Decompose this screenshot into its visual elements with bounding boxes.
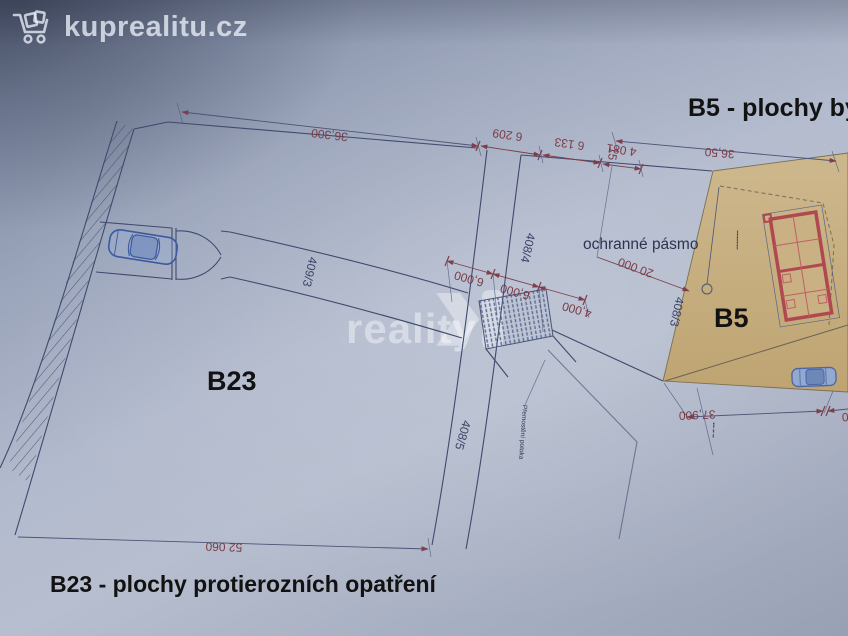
annotation-right-tiny-note: ▪▪▪ ▪▪ ▪▪: [710, 422, 717, 438]
stream-left-line: [432, 150, 487, 545]
dimension-bottom-right-partial: 0: [841, 410, 848, 424]
title-b5-area: B5 - plochy by: [688, 94, 848, 122]
parcel-label-408-4: 408/4: [518, 232, 538, 265]
annotation-bridge-note: Přemostění potoka: [517, 405, 528, 460]
cart-icon: [12, 8, 54, 46]
dimension-top-main: 36,300: [310, 126, 348, 144]
site-plan-photo: kuprealitu.cz reality: [0, 0, 848, 636]
annotation-b5-tiny-note: ▪▪▪▪▪▪▪▪▪▪▪▪: [735, 230, 740, 250]
zone-label-b5: B5: [714, 303, 749, 333]
parcel-label-408-5: 408/5: [452, 419, 474, 452]
plan-drawing: 36,300 6 209 6 133 4 081 15 36,50 20 000…: [0, 0, 848, 636]
title-b23-area: B23 - plochy protierozních opatření: [50, 571, 438, 597]
stream-right-line: [466, 155, 521, 549]
parcel-label-409-3: 409/3: [300, 256, 320, 289]
dimension-mid-1: 6,000: [452, 268, 485, 290]
dimension-top-seg1: 6 209: [491, 126, 523, 144]
gate-swing-arcs: [176, 231, 221, 280]
car-icon: [107, 228, 178, 265]
dimension-bottom: 52 060: [205, 539, 242, 554]
dimension-bottom-right: 37,900: [678, 407, 716, 423]
parcel-boundaries: [134, 122, 712, 549]
dimension-mid-3: 4,000: [560, 299, 593, 321]
b5-parcel: [663, 153, 848, 392]
car-icon: [792, 367, 837, 387]
zone-label-b23: B23: [207, 366, 257, 396]
road-hatch: [0, 121, 134, 535]
dimension-top-seg2: 6 133: [553, 135, 585, 153]
annotation-ochranne-pasmo: ochranné pásmo: [583, 236, 698, 253]
dimension-protection: 20 000: [616, 255, 656, 281]
brand-watermark: kuprealitu.cz: [12, 8, 248, 46]
dimension-tick-15: 15: [605, 146, 621, 162]
brand-text: kuprealitu.cz: [64, 11, 248, 44]
dimension-top-right: 36,50: [704, 145, 735, 162]
